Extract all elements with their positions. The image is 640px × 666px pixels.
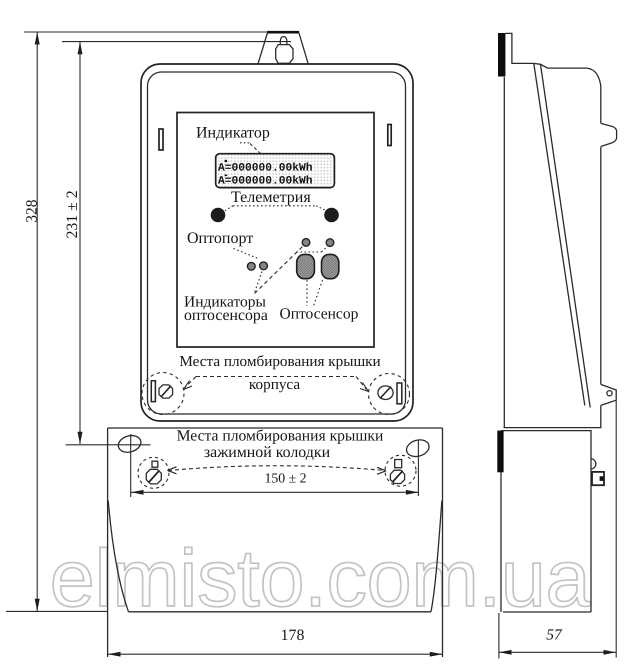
svg-text:231 ± 2: 231 ± 2 [64,190,81,238]
svg-text:Индикатор: Индикатор [196,125,270,142]
svg-text:Оптосенсор: Оптосенсор [280,306,359,323]
svg-text:корпуса: корпуса [249,376,300,393]
svg-text:57: 57 [546,627,563,644]
svg-text:оптосенсора: оптосенсора [184,307,268,324]
svg-text:Телеметрия: Телеметрия [231,189,311,206]
svg-text:178: 178 [281,627,305,644]
svg-text:зажимной колодки: зажимной колодки [204,444,331,461]
svg-text:Места пломбирования крышки: Места пломбирования крышки [179,353,380,370]
svg-text:elmisto.com.ua: elmisto.com.ua [50,534,592,624]
svg-text:Оптопорт: Оптопорт [187,230,253,247]
svg-text:A=000000.00kWh: A=000000.00kWh [218,175,313,188]
svg-text:Места пломбирования крышки: Места пломбирования крышки [177,428,384,445]
svg-text:150 ± 2: 150 ± 2 [264,470,306,485]
svg-text:328: 328 [23,199,40,223]
svg-text:A=000000.00kWh: A=000000.00kWh [218,161,313,174]
